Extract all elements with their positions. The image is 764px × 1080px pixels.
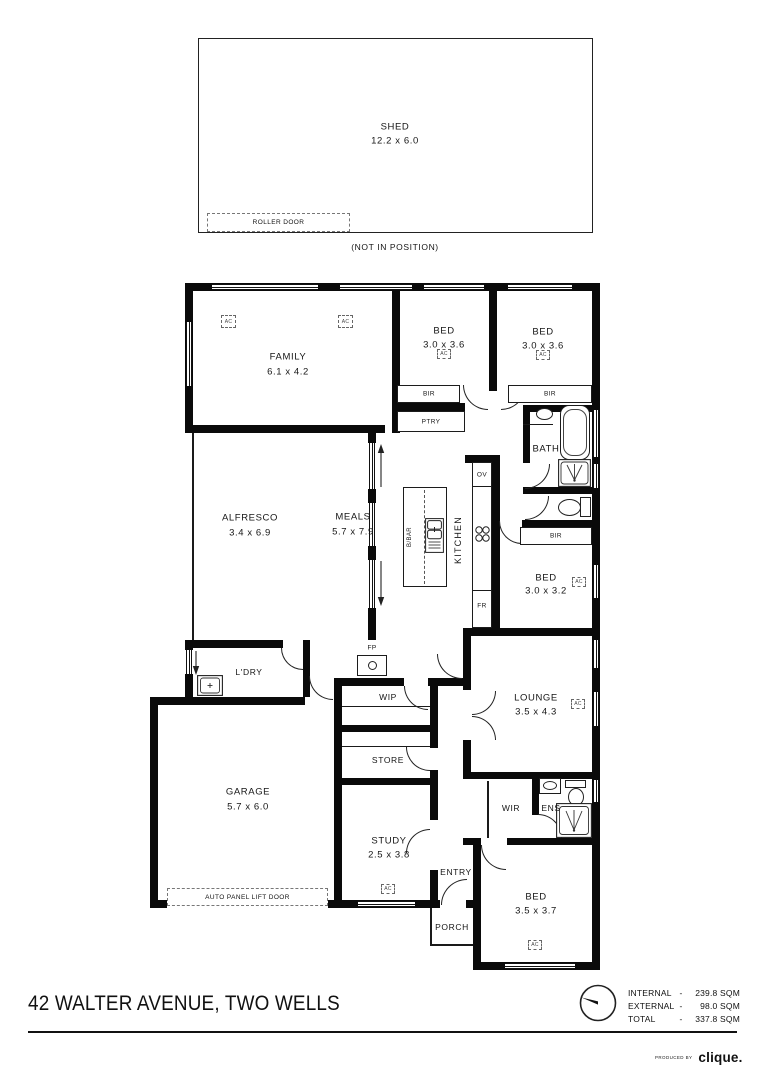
bath-basin <box>536 408 553 420</box>
wall <box>392 403 465 411</box>
wall <box>368 489 376 503</box>
room-label-bed4: BED <box>525 892 546 903</box>
area-label: TOTAL <box>628 1013 676 1026</box>
room-dims-alfresco: 3.4 x 6.9 <box>229 528 271 539</box>
bbar-label: B/BAR <box>407 527 413 547</box>
room-label-family: FAMILY <box>270 352 307 363</box>
ac-unit: AC <box>338 315 353 328</box>
room-dims-lounge: 3.5 x 4.3 <box>515 707 557 718</box>
wall <box>185 674 193 697</box>
window <box>424 284 484 290</box>
room-label-alfresco: ALFRESCO <box>222 513 278 524</box>
room-label-bath: BATH <box>532 444 559 455</box>
ac-unit: AC <box>381 884 395 894</box>
window <box>593 464 599 488</box>
door-arc-garage <box>309 676 333 700</box>
kitchen-sink-icon <box>425 518 444 553</box>
garage-auto-door: AUTO PANEL LIFT DOOR <box>167 888 328 906</box>
room-dims-bed1: 3.0 x 3.6 <box>423 340 465 351</box>
fridge-label: FR <box>477 603 486 610</box>
footer-rule <box>28 1031 737 1033</box>
room-label-porch: PORCH <box>435 922 469 932</box>
ac-unit: AC <box>528 940 542 950</box>
area-value: 337.8 SQM <box>686 1013 740 1026</box>
sliding-door-panel <box>369 503 375 546</box>
bir-label: BIR <box>550 533 562 540</box>
bir-label: BIR <box>423 391 435 398</box>
room-label-store: STORE <box>372 755 404 765</box>
window <box>593 692 599 726</box>
shed-dims: 12.2 x 6.0 <box>371 136 419 147</box>
door-arc-lounge-upper <box>472 691 496 715</box>
shower-icon-bath <box>558 459 591 487</box>
ens-basin <box>543 781 557 790</box>
clique-logo: clique. <box>698 1050 742 1065</box>
ac-unit: AC <box>536 350 550 360</box>
door-arc-ldry <box>281 648 303 670</box>
bathtub-inner <box>563 409 587 456</box>
window <box>593 780 599 802</box>
window <box>593 410 599 457</box>
wall <box>368 433 376 443</box>
room-label-garage: GARAGE <box>226 787 270 798</box>
door-arc-bed1 <box>463 385 488 410</box>
wall <box>463 772 600 779</box>
area-row-internal: INTERNAL - 239.8 SQM <box>628 987 740 1000</box>
room-label-lounge: LOUNGE <box>514 693 558 704</box>
room-label-meals: MEALS <box>335 512 370 523</box>
wall <box>507 838 600 845</box>
shower-icon-ens <box>556 803 592 838</box>
room-label-wip: WIP <box>379 692 397 702</box>
wall <box>492 462 500 628</box>
shed-label: SHED <box>381 122 410 133</box>
area-sep: - <box>676 1000 686 1013</box>
bench-divider <box>473 486 491 487</box>
wall <box>342 778 438 785</box>
floorplan-canvas: SHED 12.2 x 6.0 ROLLER DOOR (NOT IN POSI… <box>0 0 764 1080</box>
window <box>593 565 599 598</box>
area-value: 98.0 SQM <box>686 1000 740 1013</box>
wc-toilet-cistern <box>580 497 591 517</box>
produced-by-label: PRODUCED BY <box>655 1055 692 1060</box>
ac-unit: AC <box>221 315 236 328</box>
room-dims-meals: 5.7 x 7.9 <box>332 527 374 538</box>
door-arc-bath <box>525 464 550 489</box>
sliding-door-panel <box>369 560 375 608</box>
bath-vanity-line <box>523 424 553 425</box>
window <box>358 901 415 907</box>
bench-divider <box>473 590 491 591</box>
window <box>186 322 192 386</box>
door-arc-bed4 <box>481 845 506 870</box>
wall <box>489 291 497 391</box>
room-label-bed2: BED <box>532 327 553 338</box>
area-label: EXTERNAL <box>628 1000 676 1013</box>
shed-note: (NOT IN POSITION) <box>351 242 439 252</box>
slide-arrow-down-icon <box>376 560 386 606</box>
laundry-trough-icon <box>197 675 223 696</box>
area-sep: - <box>676 1013 686 1026</box>
area-row-external: EXTERNAL - 98.0 SQM <box>628 1000 740 1013</box>
area-table: INTERNAL - 239.8 SQM EXTERNAL - 98.0 SQM… <box>628 987 740 1026</box>
sliding-door-panel <box>369 443 375 489</box>
door-arc-lounge-lower <box>472 716 496 740</box>
wall <box>185 425 385 433</box>
wall <box>592 283 600 970</box>
wall <box>150 900 167 908</box>
wall <box>466 900 473 908</box>
ens-toilet-cistern <box>565 780 586 788</box>
window <box>340 284 412 290</box>
room-dims-family: 6.1 x 4.2 <box>267 367 309 378</box>
window <box>212 284 318 290</box>
wall <box>523 487 600 494</box>
room-label-ldry: L'DRY <box>235 667 262 677</box>
wall <box>522 520 600 527</box>
wall <box>463 838 481 845</box>
wall <box>473 845 481 970</box>
bir-label: BIR <box>544 391 556 398</box>
room-label-study: STUDY <box>371 836 406 847</box>
fireplace-flue-icon <box>368 661 377 670</box>
wall <box>523 405 530 463</box>
wall <box>185 640 283 648</box>
kitchen-label: KITCHEN <box>453 516 463 564</box>
ac-unit: AC <box>572 577 586 587</box>
room-dims-study: 2.5 x 3.8 <box>368 850 410 861</box>
room-dims-garage: 5.7 x 6.0 <box>227 802 269 813</box>
wall <box>303 640 310 697</box>
window <box>508 284 572 290</box>
room-label-bed1: BED <box>433 326 454 337</box>
address-title: 42 WALTER AVENUE, TWO WELLS <box>28 992 340 1016</box>
wall <box>328 900 342 908</box>
wall <box>463 628 471 690</box>
room-dims-bed4: 3.5 x 3.7 <box>515 906 557 917</box>
porch-edge-bottom <box>430 944 473 946</box>
shed-roller-door: ROLLER DOOR <box>207 213 350 232</box>
door-arc-hall <box>437 654 462 679</box>
door-arc-front-entry <box>441 879 467 905</box>
wall <box>150 697 305 705</box>
wir-rail-line <box>487 781 489 838</box>
entry-arrow-icon <box>191 650 201 675</box>
wall <box>368 546 376 560</box>
door-arc-store <box>406 747 430 771</box>
window <box>593 640 599 668</box>
ac-unit: AC <box>437 349 451 359</box>
wall <box>342 725 438 732</box>
wall <box>532 779 539 815</box>
window <box>505 963 575 969</box>
slide-arrow-up-icon <box>376 444 386 488</box>
ac-unit: AC <box>571 699 585 709</box>
producer-credit: PRODUCED BY clique. <box>655 1050 743 1065</box>
wall <box>150 697 158 908</box>
roller-door-label: ROLLER DOOR <box>253 219 305 226</box>
alfresco-open-edge <box>192 433 194 640</box>
porch-edge-left <box>430 908 432 946</box>
area-label: INTERNAL <box>628 987 676 1000</box>
door-arc-wc <box>525 496 549 520</box>
room-dims-bed3: 3.0 x 3.2 <box>525 586 567 597</box>
fireplace-label: FP <box>367 645 376 652</box>
wall <box>368 608 376 640</box>
room-dims-bed2: 3.0 x 3.6 <box>522 341 564 352</box>
auto-door-label: AUTO PANEL LIFT DOOR <box>205 894 290 901</box>
area-sep: - <box>676 987 686 1000</box>
area-value: 239.8 SQM <box>686 987 740 1000</box>
wc-toilet-bowl <box>558 499 581 516</box>
compass-icon <box>578 983 618 1023</box>
door-arc-bed3 <box>499 521 522 544</box>
wall <box>185 640 193 650</box>
wall <box>430 678 438 748</box>
cooktop-icon <box>474 525 491 543</box>
room-label-ens: ENS <box>541 803 560 813</box>
pantry-label: PTRY <box>422 419 441 426</box>
area-row-total: TOTAL - 337.8 SQM <box>628 1013 740 1026</box>
room-label-entry: ENTRY <box>440 867 472 877</box>
wall <box>334 678 404 686</box>
room-label-wir: WIR <box>502 803 520 813</box>
room-label-bed3: BED <box>535 573 556 584</box>
wall <box>334 678 342 908</box>
oven-label: OV <box>477 472 487 479</box>
wall <box>463 628 600 636</box>
